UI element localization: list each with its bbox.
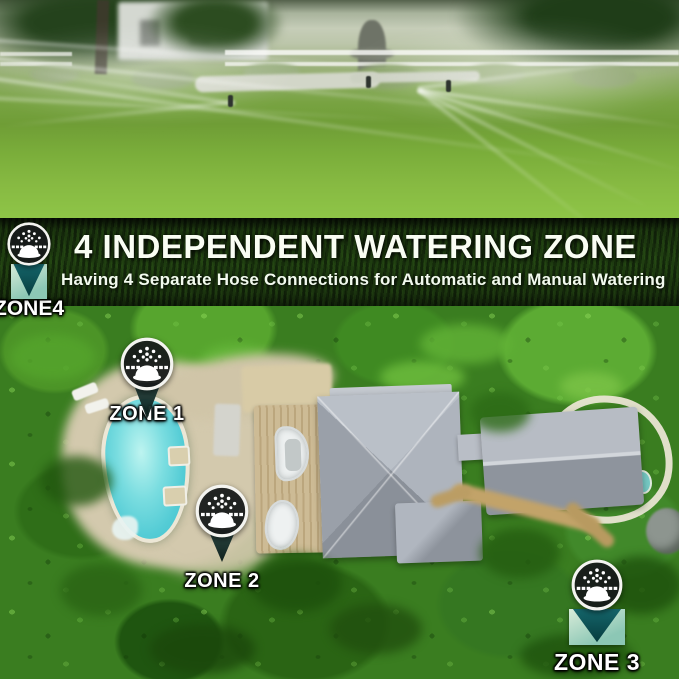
marker-pointer	[569, 609, 625, 645]
marker-square	[569, 609, 625, 645]
sprinkler-head	[446, 80, 451, 92]
main-house-wing-roof	[395, 501, 483, 564]
marker-pointer	[11, 264, 47, 299]
sprinkler-icon	[6, 221, 52, 267]
sprinkler-icon	[570, 558, 624, 612]
zone-4-marker: ZONE4	[0, 221, 58, 321]
sprinkler-head	[366, 76, 371, 88]
foliage-blob	[40, 456, 112, 506]
foliage-blob	[60, 564, 142, 616]
sprinkler-product-image: 4 INDEPENDENT WATERING ZONE Having 4 Sep…	[0, 0, 679, 679]
foliage-blob	[330, 604, 422, 654]
zone-label: ZONE 3	[554, 649, 640, 676]
zone-3-marker: ZONE 3	[565, 558, 629, 676]
pool-ladder	[167, 445, 190, 466]
subtitle: Having 4 Separate Hose Connections for A…	[61, 270, 666, 290]
zone-1-marker: ZONE 1	[118, 336, 176, 426]
walkway-steps	[213, 404, 241, 457]
sprinkler-icon	[194, 483, 250, 539]
zone-label: ZONE 2	[184, 570, 259, 593]
headline-banner: 4 INDEPENDENT WATERING ZONE Having 4 Sep…	[0, 218, 679, 306]
foliage-blob	[480, 528, 560, 578]
foliage-blob	[10, 334, 95, 380]
zone-2-marker: ZONE 2	[193, 483, 251, 593]
foliage-blob	[470, 392, 530, 432]
hot-tub-water	[284, 439, 301, 472]
sprinkler-icon	[119, 336, 175, 392]
foliage-blob	[250, 554, 342, 612]
pool-ladder	[162, 485, 187, 506]
lawn-photo	[0, 0, 679, 218]
marker-square	[11, 264, 47, 299]
headline: 4 INDEPENDENT WATERING ZONE	[74, 228, 637, 266]
foliage-blob	[150, 624, 255, 674]
foliage-blob	[420, 324, 512, 364]
sprinkler-head	[228, 95, 233, 107]
zone-label: ZONE4	[0, 297, 64, 321]
pool-steps	[112, 516, 138, 540]
